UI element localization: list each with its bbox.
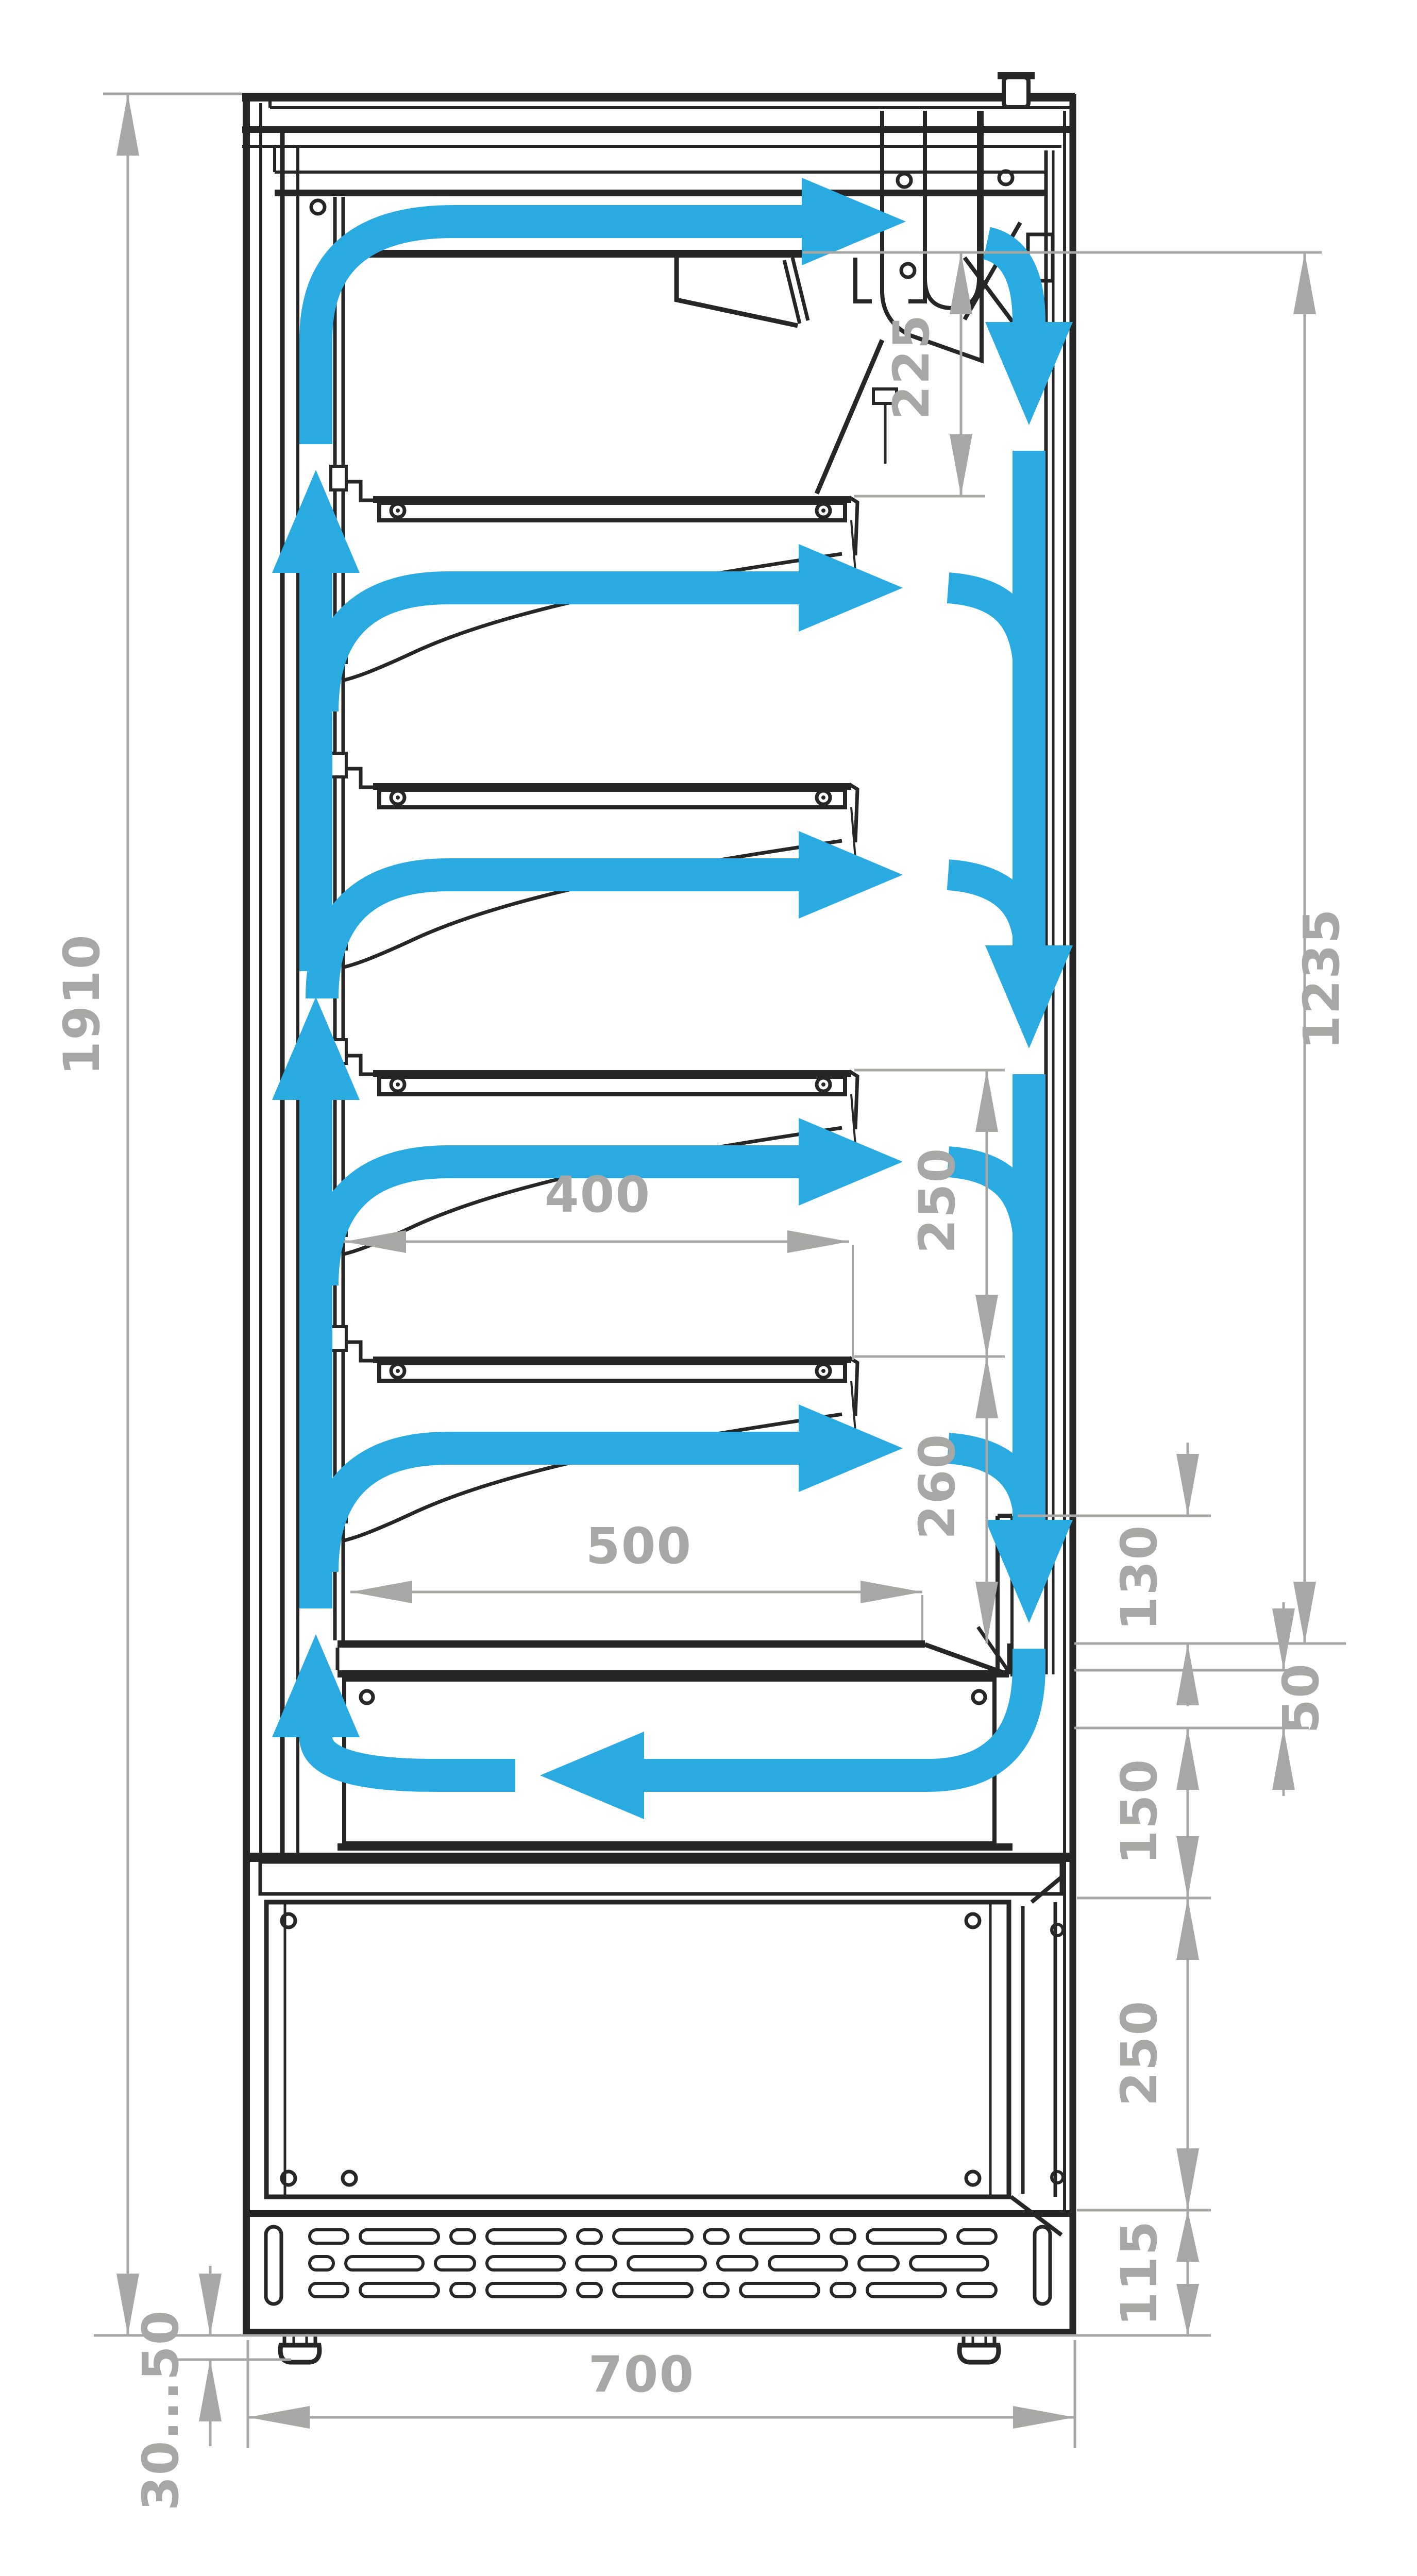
down-arrow-icon	[985, 322, 1073, 425]
airflow-curtain-entry	[987, 243, 1029, 322]
dim-deck-depth: 500	[350, 1517, 922, 1603]
up-arrow-icon	[975, 1070, 998, 1132]
dim-label-130: 130	[1110, 1524, 1168, 1631]
down-arrow-icon	[950, 434, 972, 496]
up-arrow-icon	[1176, 1728, 1199, 1790]
left-arrow-icon	[350, 1581, 412, 1603]
dim-label-260: 260	[908, 1433, 966, 1539]
right-arrow-icon	[1013, 2406, 1075, 2429]
up-arrow-icon	[116, 94, 139, 156]
right-arrow-icon	[787, 1230, 849, 1253]
dim-label-400: 400	[545, 1166, 651, 1224]
cabinet-cross-section-diagram: 1910 30...50 225 1235	[0, 0, 1417, 2576]
diagram-stage: 1910 30...50 225 1235	[0, 0, 1417, 2576]
up-arrow-icon	[199, 2360, 222, 2421]
airflow-merge-2	[948, 875, 1029, 951]
up-arrow-icon	[1293, 252, 1316, 314]
dim-label-1235: 1235	[1293, 908, 1351, 1049]
down-arrow-icon	[1293, 1582, 1316, 1643]
dim-overall-depth: 700	[248, 2346, 1075, 2429]
dim-label-150: 150	[1110, 1758, 1168, 1865]
down-arrow-icon	[199, 2274, 222, 2335]
dim-label-225: 225	[883, 314, 940, 420]
right-arrow-icon	[799, 1118, 903, 1206]
dim-shelf-spacing: 250	[908, 1070, 998, 1357]
dim-overall-height: 1910	[53, 94, 139, 2335]
up-arrow-icon	[975, 1357, 998, 1418]
dim-display-opening-height: 1235	[1293, 252, 1351, 1643]
dim-label-50: 50	[1272, 1663, 1330, 1734]
dim-base-well-height: 150	[1110, 1728, 1199, 1898]
up-arrow-icon	[1176, 1898, 1199, 1960]
down-arrow-icon	[1176, 2284, 1199, 2335]
dim-label-overall-height: 1910	[53, 934, 111, 1075]
down-arrow-icon	[975, 1295, 998, 1357]
grille-slots-row-3	[310, 2283, 996, 2297]
dim-machine-compartment-height: 250	[1110, 1898, 1199, 2210]
dim-label-115: 115	[1110, 2220, 1168, 2326]
up-arrow-icon	[1176, 2210, 1199, 2262]
down-arrow-icon	[975, 1582, 998, 1643]
top-screw-cap	[998, 72, 1035, 79]
shelves	[342, 482, 857, 1541]
grille-slots-row-2	[310, 2257, 988, 2270]
right-arrow-icon	[799, 544, 903, 632]
dim-deck-edge-height: 50	[1272, 1602, 1330, 1796]
machine-compartment	[266, 1876, 1063, 2235]
down-arrow-icon	[1176, 2148, 1199, 2210]
bottom-deck	[338, 1640, 1013, 1851]
dim-label-250-machine: 250	[1110, 2000, 1168, 2106]
dim-label-500: 500	[586, 1517, 692, 1575]
dim-plinth-grille-height: 115	[1110, 2210, 1199, 2335]
right-arrow-icon	[861, 1581, 922, 1603]
up-arrow-icon	[1176, 1643, 1199, 1705]
top-cap	[242, 72, 1075, 196]
dim-label-foot-adjust: 30...50	[132, 2310, 190, 2511]
airflow-merge-1	[948, 588, 1029, 678]
down-arrow-icon	[1176, 1454, 1199, 1516]
left-arrow-icon	[248, 2406, 310, 2429]
vent-grille	[246, 2210, 1073, 2335]
dim-label-250-shelves: 250	[908, 1147, 966, 1253]
adjustable-foot-right	[959, 2335, 999, 2362]
dim-front-riser-height: 130	[1110, 1443, 1199, 1706]
dim-foot-adjust: 30...50	[132, 2266, 222, 2511]
body-bottom	[246, 1853, 1073, 1894]
grille-slots-row-1	[310, 2230, 996, 2243]
dim-label-700: 700	[588, 2346, 695, 2403]
adjustable-foot-left	[280, 2335, 319, 2362]
down-arrow-icon	[1176, 1836, 1199, 1898]
right-arrow-icon	[799, 831, 903, 919]
right-arrow-icon	[799, 1404, 903, 1492]
up-arrow-icon	[1272, 1728, 1295, 1790]
down-arrow-icon	[1272, 1608, 1295, 1670]
down-arrow-icon	[985, 945, 1073, 1048]
top-screw-icon	[1004, 77, 1028, 107]
